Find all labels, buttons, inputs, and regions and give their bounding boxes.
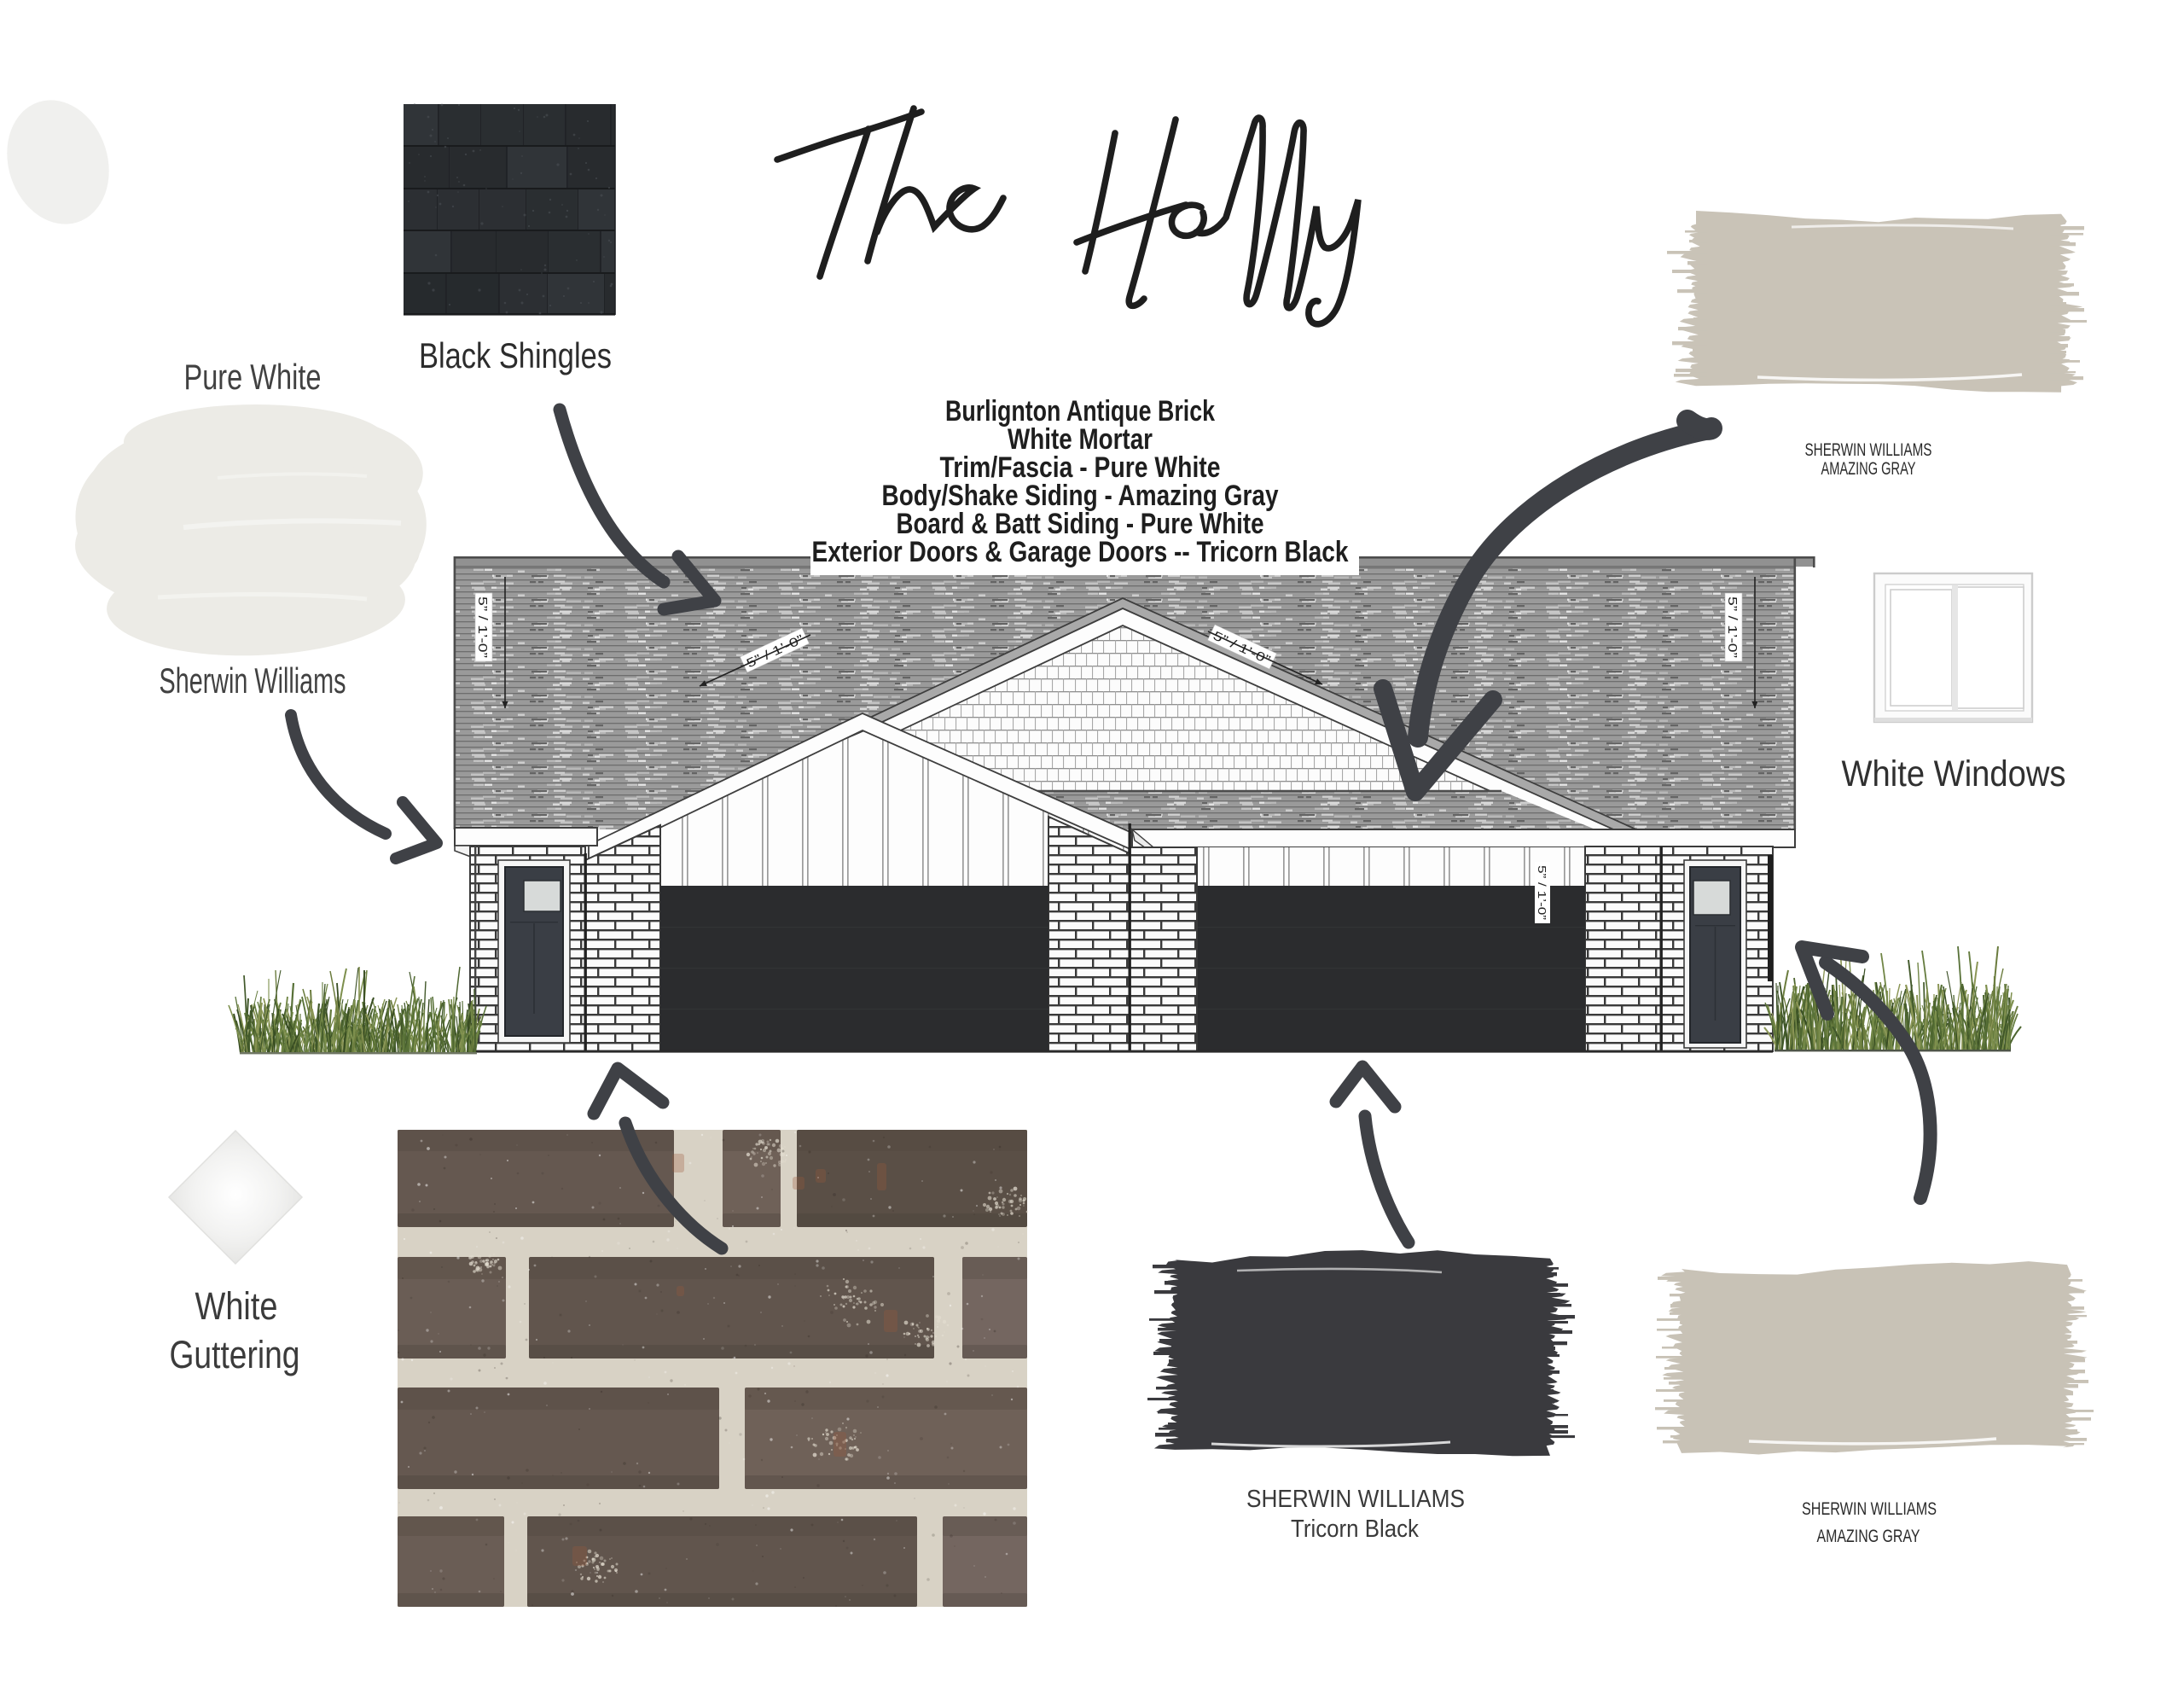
svg-text:SHERWIN WILLIAMS: SHERWIN WILLIAMS <box>1805 440 1932 460</box>
svg-text:5” / 1’-0”: 5” / 1’-0” <box>475 596 489 658</box>
svg-text:Pure White: Pure White <box>184 357 322 397</box>
svg-text:White: White <box>195 1284 278 1328</box>
svg-text:5” / 1’-0”: 5” / 1’-0” <box>1725 596 1739 658</box>
svg-text:Guttering: Guttering <box>170 1333 300 1376</box>
svg-text:Black Shingles: Black Shingles <box>419 335 612 375</box>
svg-text:Exterior Doors & Garage Doors: Exterior Doors & Garage Doors -- Tricorn… <box>812 536 1349 568</box>
svg-text:Tricorn Black: Tricorn Black <box>1291 1516 1419 1543</box>
svg-text:Sherwin Williams: Sherwin Williams <box>160 660 346 701</box>
svg-text:SHERWIN WILLIAMS: SHERWIN WILLIAMS <box>1802 1499 1937 1519</box>
svg-text:SHERWIN WILLIAMS: SHERWIN WILLIAMS <box>1246 1486 1465 1513</box>
svg-text:5” / 1’-0”: 5” / 1’-0” <box>1536 865 1548 920</box>
svg-text:AMAZING GRAY: AMAZING GRAY <box>1821 459 1916 479</box>
svg-text:White Windows: White Windows <box>1842 753 2066 794</box>
svg-text:AMAZING GRAY: AMAZING GRAY <box>1817 1527 1920 1546</box>
